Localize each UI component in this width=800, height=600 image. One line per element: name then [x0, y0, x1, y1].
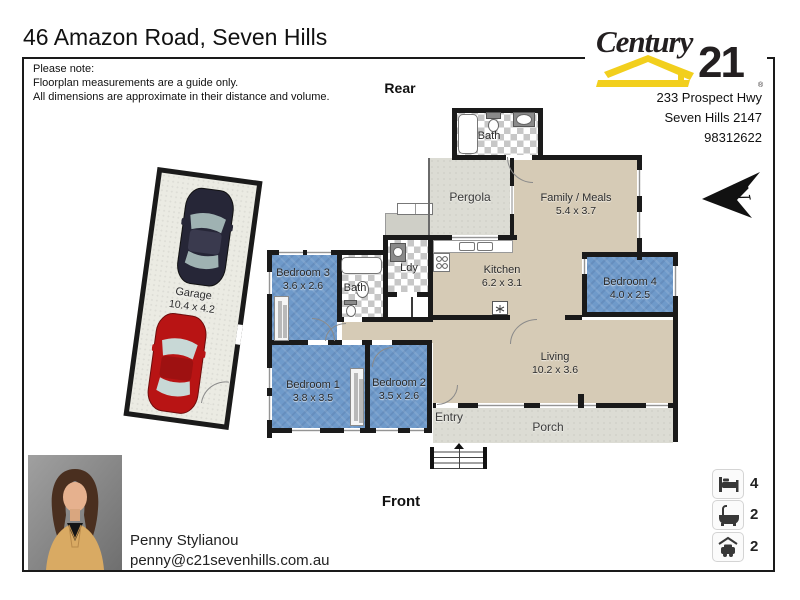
- door-opening: [372, 340, 392, 345]
- laundry-sink: [393, 247, 403, 257]
- bath-count: 2: [750, 506, 758, 523]
- bath-icon: [716, 503, 740, 527]
- wall: [365, 345, 370, 433]
- bed-count: 4: [750, 475, 758, 492]
- room-label-family: Family / Meals5.4 x 3.7: [541, 192, 612, 218]
- room-label-living: Living10.2 x 3.6: [532, 351, 578, 377]
- note-line: Floorplan measurements are a guide only.: [33, 76, 330, 90]
- north-arrow-icon: N: [698, 168, 762, 220]
- disclaimer-note: Please note: Floorplan measurements are …: [33, 62, 330, 104]
- car-dark-icon: [173, 184, 238, 290]
- window: [279, 250, 303, 255]
- wall: [538, 108, 543, 160]
- sink: [477, 242, 493, 251]
- bed-icon-box: [712, 469, 744, 499]
- window: [582, 259, 587, 274]
- wall: [452, 155, 642, 160]
- window: [637, 212, 642, 238]
- toilet-cistern: [486, 112, 501, 119]
- car-count: 2: [750, 538, 758, 555]
- wall: [565, 315, 582, 320]
- logo-century-text: Century: [596, 24, 692, 60]
- room-label-laundry: Ldy: [400, 262, 418, 275]
- room-label-bath: Bath: [344, 282, 367, 295]
- porch-post: [578, 394, 584, 408]
- window: [267, 396, 272, 420]
- room-label-bedroom2: Bedroom 23.5 x 2.6: [372, 377, 426, 403]
- window: [540, 403, 596, 408]
- page-title: 46 Amazon Road, Seven Hills: [23, 24, 327, 51]
- wall: [452, 108, 457, 160]
- office-address: 233 Prospect Hwy Seven Hills 2147 983126…: [590, 88, 762, 148]
- window: [267, 368, 272, 388]
- note-line: Please note:: [33, 62, 330, 76]
- kitchen-living-opening: [510, 315, 565, 321]
- room-label-pergola: Pergola: [449, 190, 490, 204]
- room-label-bedroom1: Bedroom 13.8 x 3.5: [286, 379, 340, 405]
- agent-email: penny@c21sevenhills.com.au: [130, 551, 330, 571]
- room-label-bedroom3: Bedroom 33.6 x 2.6: [276, 267, 330, 293]
- agent-name: Penny Stylianou: [130, 531, 330, 551]
- wall: [582, 312, 678, 317]
- bathtub: [458, 114, 478, 154]
- bathtub: [341, 257, 382, 274]
- dishwasher: [492, 301, 508, 315]
- agent-details: Penny Stylianou penny@c21sevenhills.com.…: [130, 531, 330, 571]
- window: [410, 428, 424, 433]
- logo-21-text: 21: [698, 38, 743, 88]
- wall: [582, 252, 678, 257]
- north-letter: N: [729, 180, 754, 203]
- window: [292, 428, 320, 433]
- room-label-bath-top: Bath: [478, 130, 501, 143]
- window: [376, 428, 398, 433]
- room-label-porch: Porch: [532, 420, 563, 434]
- bath-icon-box: [712, 500, 744, 530]
- window: [673, 266, 678, 296]
- address-line: Seven Hills 2147: [590, 108, 762, 128]
- wardrobe: [274, 296, 289, 341]
- office-phone: 98312622: [590, 128, 762, 148]
- window: [510, 186, 514, 214]
- window: [637, 170, 642, 196]
- room-label-entry: Entry: [435, 410, 463, 424]
- wall: [383, 235, 433, 240]
- window: [646, 403, 668, 408]
- wardrobe: [350, 368, 364, 426]
- agent-photo: [28, 455, 122, 570]
- floorplan-page: 46 Amazon Road, Seven Hills Please note:…: [0, 0, 800, 600]
- pergola-edge: [428, 158, 430, 235]
- front-label: Front: [382, 493, 420, 510]
- note-line: All dimensions are approximate in their …: [33, 90, 330, 104]
- door-opening: [344, 317, 362, 322]
- window: [307, 250, 331, 255]
- car-icon-box: [712, 532, 744, 562]
- bed-icon: [716, 472, 740, 496]
- address-line: 233 Prospect Hwy: [590, 88, 762, 108]
- basin: [516, 114, 532, 125]
- room-family-floor: [582, 240, 637, 252]
- window: [478, 403, 524, 408]
- car-icon: [716, 535, 740, 559]
- room-label-bedroom4: Bedroom 44.0 x 2.5: [603, 276, 657, 302]
- window: [267, 272, 272, 294]
- sink: [459, 242, 475, 251]
- toilet: [346, 305, 356, 317]
- room-label-kitchen: Kitchen6.2 x 3.1: [482, 264, 522, 290]
- window: [344, 428, 360, 433]
- door-opening: [397, 292, 417, 297]
- wall: [383, 235, 388, 322]
- wall: [427, 340, 432, 433]
- rear-label: Rear: [384, 80, 415, 96]
- front-stairs: [430, 447, 487, 469]
- door-arc: [201, 378, 229, 406]
- stairs-up-arrow: [454, 443, 464, 449]
- cooktop: [433, 253, 450, 272]
